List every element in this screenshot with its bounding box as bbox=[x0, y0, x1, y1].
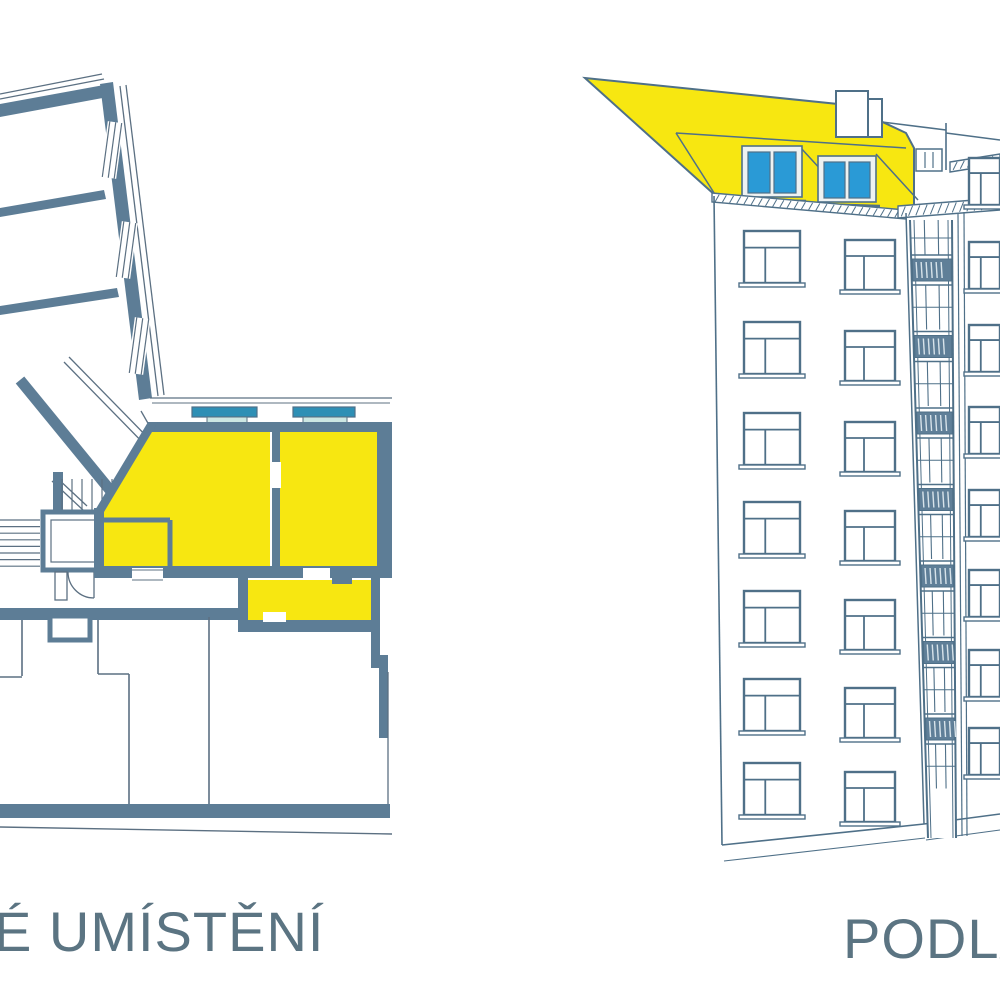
window bbox=[840, 511, 900, 565]
window bbox=[964, 728, 1000, 779]
window bbox=[739, 679, 805, 735]
window bbox=[964, 407, 1000, 458]
window bbox=[840, 772, 900, 826]
balcony-railing bbox=[917, 412, 953, 434]
window bbox=[739, 591, 805, 647]
window bbox=[840, 422, 900, 476]
window bbox=[840, 331, 900, 385]
window bbox=[739, 502, 805, 558]
window bbox=[739, 763, 805, 819]
window bbox=[840, 240, 900, 294]
courtyard bbox=[0, 608, 392, 834]
caption-floor: PODLA bbox=[843, 906, 1000, 971]
balcony-railing bbox=[926, 718, 956, 740]
window bbox=[739, 231, 805, 287]
balcony-stack bbox=[910, 220, 956, 838]
dormer-window bbox=[738, 146, 806, 201]
window-bar bbox=[192, 407, 257, 417]
attic-window bbox=[916, 149, 942, 171]
dormer-window bbox=[814, 156, 880, 206]
room-left bbox=[98, 428, 270, 570]
window bbox=[964, 650, 1000, 701]
room-right bbox=[280, 428, 377, 570]
door-arc bbox=[68, 572, 94, 598]
balcony-railing bbox=[921, 565, 953, 587]
chimney bbox=[836, 91, 868, 137]
window bbox=[964, 242, 1000, 293]
listing-illustration-page: É UMÍSTĚNÍ PODLA bbox=[0, 0, 1000, 1000]
window bbox=[840, 600, 900, 654]
shaft bbox=[50, 616, 90, 640]
window bbox=[964, 325, 1000, 376]
caption-location: É UMÍSTĚNÍ bbox=[0, 899, 324, 964]
window bbox=[964, 158, 1000, 209]
floor-plan bbox=[0, 74, 392, 834]
balcony-railing bbox=[919, 489, 953, 511]
balcony-railing bbox=[914, 336, 952, 358]
window bbox=[840, 688, 900, 742]
window-bar bbox=[293, 407, 355, 417]
upper-wing bbox=[0, 74, 164, 400]
building-elevation bbox=[585, 78, 1000, 861]
window bbox=[964, 570, 1000, 621]
window bbox=[739, 322, 805, 378]
balcony-railing bbox=[912, 259, 951, 281]
balcony-railing bbox=[923, 642, 954, 664]
window bbox=[964, 490, 1000, 541]
window bbox=[739, 413, 805, 469]
illustration-canvas bbox=[0, 0, 1000, 1000]
